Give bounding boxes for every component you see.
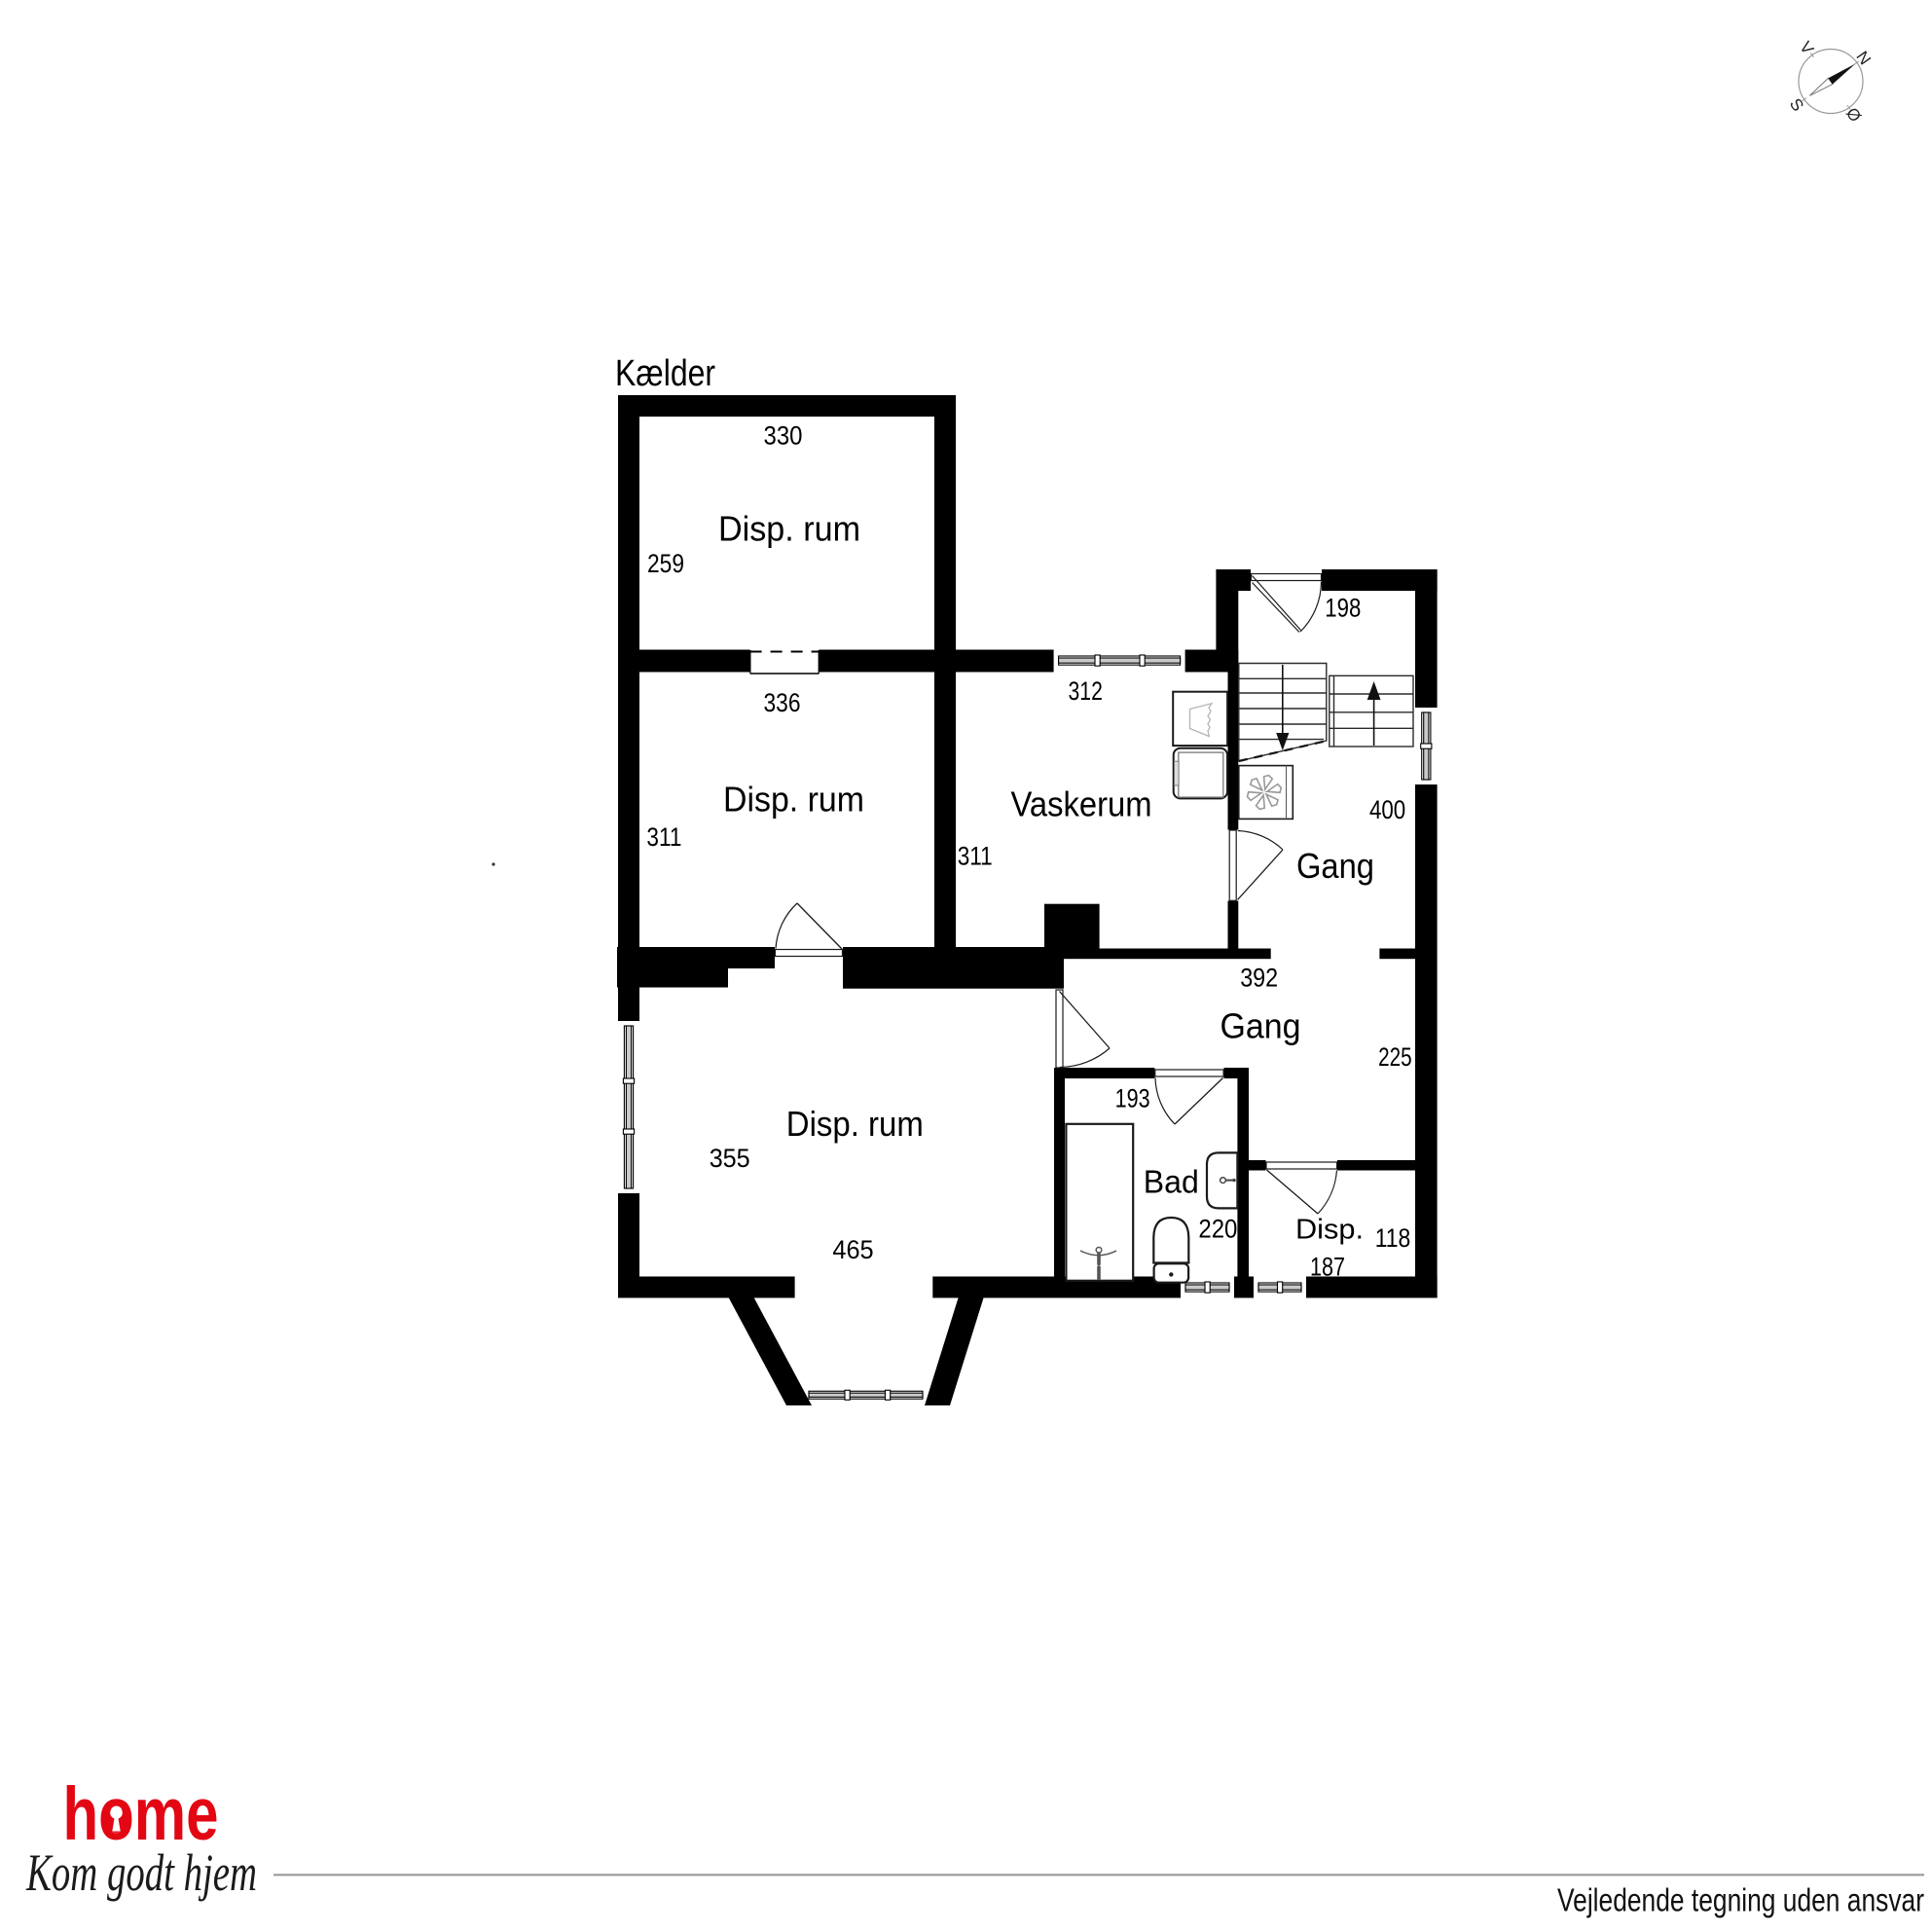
svg-text:330: 330 [764, 421, 803, 451]
svg-text:392: 392 [1240, 964, 1278, 993]
svg-text:311: 311 [646, 822, 681, 852]
svg-text:312: 312 [1069, 676, 1103, 706]
svg-text:Gang: Gang [1221, 1006, 1301, 1046]
svg-text:Disp. rum: Disp. rum [718, 509, 860, 549]
svg-text:355: 355 [710, 1144, 750, 1173]
svg-text:400: 400 [1369, 795, 1405, 824]
svg-text:336: 336 [764, 688, 801, 717]
svg-text:Kom godt hjem: Kom godt hjem [25, 1843, 257, 1902]
svg-text:Disp.: Disp. [1295, 1215, 1364, 1246]
svg-text:198: 198 [1325, 593, 1361, 622]
svg-text:Vejledende tegning uden ansvar: Vejledende tegning uden ansvar [1557, 1882, 1924, 1918]
svg-text:Kælder: Kælder [615, 353, 715, 394]
svg-text:311: 311 [958, 841, 993, 870]
svg-text:220: 220 [1198, 1215, 1237, 1244]
svg-text:Disp. rum: Disp. rum [786, 1104, 924, 1144]
svg-text:Disp. rum: Disp. rum [723, 780, 864, 820]
svg-text:Vaskerum: Vaskerum [1011, 784, 1152, 824]
svg-text:187: 187 [1310, 1253, 1345, 1282]
svg-text:118: 118 [1375, 1223, 1411, 1253]
svg-text:465: 465 [832, 1235, 873, 1264]
svg-text:193: 193 [1115, 1083, 1150, 1112]
svg-text:259: 259 [647, 549, 684, 578]
svg-text:Bad: Bad [1144, 1164, 1199, 1200]
svg-text:Gang: Gang [1296, 846, 1374, 886]
svg-text:225: 225 [1378, 1042, 1412, 1072]
